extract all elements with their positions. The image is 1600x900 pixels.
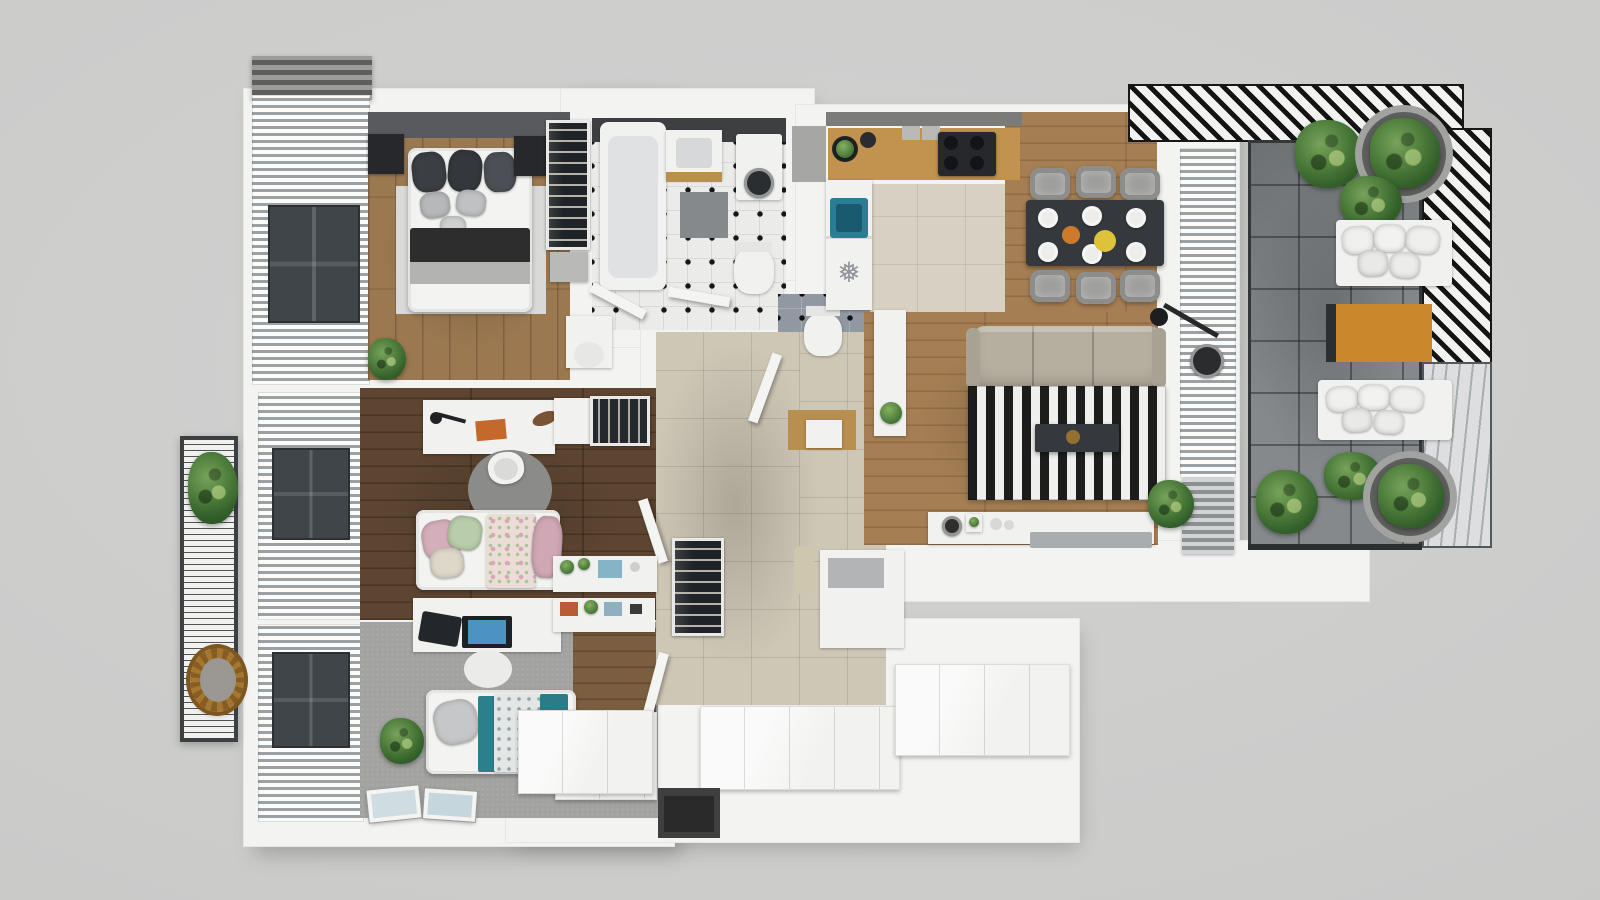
duvet-master-gray (410, 262, 530, 284)
floor-kitchen (870, 184, 1010, 312)
dining-chair-top-3 (1120, 168, 1160, 200)
sofa-living (974, 326, 1160, 390)
console-bowl-1 (990, 518, 1002, 530)
entry-niche-inner (664, 796, 714, 832)
terrace-sofa1-cushion-4 (1357, 249, 1388, 277)
shelf2-plant-2 (578, 558, 590, 570)
pillow-master-5 (455, 188, 488, 217)
balcony-basket-cat (200, 658, 236, 702)
terrace-sofa1-cushion-3 (1405, 224, 1442, 255)
dining-chair-bottom-2 (1076, 272, 1116, 304)
duvet-master-dark (410, 228, 530, 264)
kitchen-sink-inner (836, 204, 862, 232)
floor-lamp-base (1190, 344, 1224, 378)
burner-1 (944, 136, 958, 150)
dining-chair-bottom-1 (1030, 270, 1070, 302)
bath-sink-basin (676, 138, 712, 168)
duvet-bed2-floral (486, 514, 536, 588)
console-clock (942, 516, 962, 536)
washing-machine-door (744, 168, 774, 198)
sofa-arm-right (1152, 328, 1166, 388)
kitchen-container-1 (902, 126, 920, 140)
console-frame-plant (969, 517, 979, 527)
kettle (860, 132, 876, 148)
balcony-plant (188, 452, 238, 524)
pillow-master-1 (410, 150, 448, 193)
floor-kids-bedroom-wood-strip (573, 628, 656, 716)
terrace-pot-round-plant (1378, 464, 1444, 528)
dining-chair-top-2 (1076, 166, 1116, 198)
shelf2-picture-blue (598, 560, 622, 578)
plant-living (1148, 480, 1194, 528)
sofa-arm-left (966, 328, 980, 388)
plate-4 (1038, 242, 1058, 262)
tv-panel (1030, 532, 1152, 548)
burner-4 (970, 156, 984, 170)
food-dish-yellow (1094, 230, 1116, 252)
nightstand-master-right (514, 136, 548, 176)
shelf3-picture-1 (560, 602, 578, 616)
duct-column-kitchen (792, 126, 826, 182)
window-blinds-living-terrace (1180, 148, 1236, 478)
coffee-table-decor (1066, 430, 1080, 444)
kitchen-wall-band (826, 112, 1022, 126)
floor-picture-2 (423, 788, 477, 822)
entry-wardrobe-3 (895, 664, 1070, 756)
toilet-bathroom-tank (736, 242, 772, 252)
terrace-sofa2-cushion-2 (1358, 384, 1390, 410)
burner-2 (970, 136, 984, 150)
drawer-unit-bedroom2 (554, 398, 590, 444)
shelf2-plant-1 (560, 560, 574, 574)
window-glass-bedroom2 (272, 448, 350, 540)
terrace-plant-bush (1256, 470, 1318, 534)
nightstand-master-left (368, 134, 404, 174)
bathtub-inner (608, 136, 658, 278)
toilet-wc (804, 314, 842, 356)
terrace-sofa2-cushion-4 (1341, 407, 1373, 433)
terrace-sofa2-cushion-5 (1373, 409, 1404, 435)
hall-console-chair (574, 342, 604, 368)
shelf2-decor (630, 562, 640, 572)
desk2-picture (475, 419, 507, 442)
bath-mat (680, 192, 728, 238)
hall-cabinet-inset (828, 558, 884, 588)
console-bowl-2 (1004, 520, 1014, 530)
dining-chair-bottom-3 (1120, 270, 1160, 302)
terrace-sofa2-cushion-3 (1389, 385, 1425, 414)
floor-picture-1 (366, 785, 421, 822)
plate-2 (1082, 206, 1102, 226)
window-glass-master (268, 205, 360, 323)
roof-cap-top-left (252, 56, 372, 100)
toilet-bathroom (734, 248, 774, 294)
floor-lamp-head (1150, 308, 1168, 326)
pillow-master-2 (446, 149, 484, 194)
fruit-bowl-greens (836, 140, 854, 158)
shelf3-plant (584, 600, 598, 614)
terrace-edge-bottom (1248, 544, 1422, 550)
terrace-table-wood (1336, 304, 1432, 362)
shelf3-picture-2 (604, 602, 622, 616)
cabinet-master (550, 252, 588, 282)
desk-chair2-seat (494, 458, 518, 480)
wc-sink (806, 420, 842, 448)
wardrobe-bedroom2-open (590, 396, 650, 446)
window-glass-bedroom3 (272, 652, 350, 748)
dining-chair-top-1 (1030, 168, 1070, 200)
food-dish-orange (1062, 226, 1080, 244)
entry-wardrobe-2 (700, 706, 900, 790)
hall-towel (794, 546, 814, 594)
wardrobe-master-open (546, 120, 590, 250)
entry-wardrobe-1 (518, 710, 654, 794)
plant-bedroom3 (380, 718, 424, 764)
terrace-sofa1-cushion-2 (1374, 224, 1406, 252)
wardrobe-hall-open (672, 538, 724, 636)
shelf3-decor (630, 604, 642, 614)
plate-6 (1126, 242, 1146, 262)
terrace-table-frame (1326, 304, 1336, 362)
monitor-screen (468, 620, 506, 644)
plate-3 (1126, 208, 1146, 228)
wc-shelf-plant (880, 402, 902, 424)
terrace-sofa1-cushion-5 (1389, 251, 1421, 279)
plate-1 (1038, 208, 1058, 228)
bath-sink-wood-edge (666, 172, 722, 182)
freezer-snowflake-icon: ❅ (832, 256, 866, 290)
terrace-plant-fern (1295, 120, 1363, 188)
floorplan-3d-render: ❅ (0, 0, 1600, 900)
desk-chair-bedroom3 (464, 650, 512, 688)
burner-3 (944, 156, 958, 170)
pillow-master-3 (483, 151, 517, 193)
plant-master (368, 338, 406, 380)
